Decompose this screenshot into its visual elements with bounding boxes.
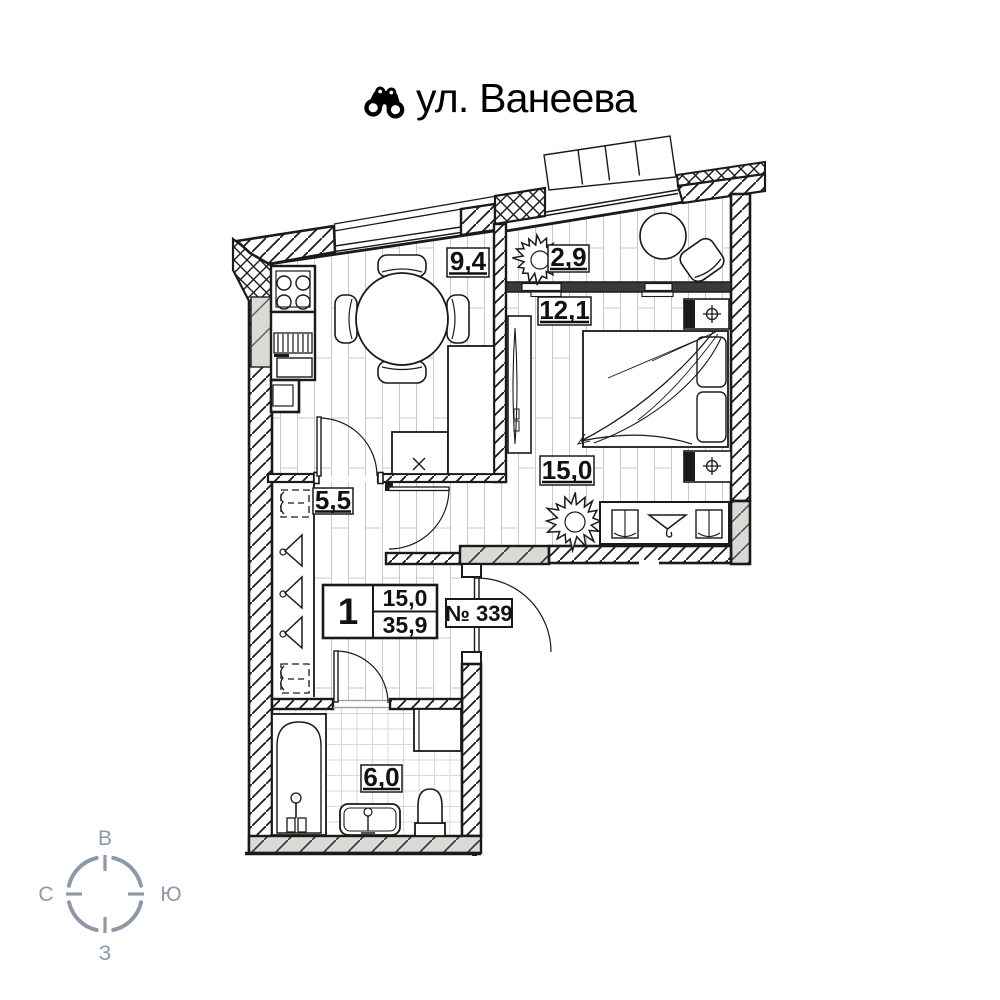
svg-text:В: В (98, 827, 112, 850)
svg-text:С: С (38, 883, 53, 906)
svg-text:12,1: 12,1 (539, 295, 590, 325)
svg-text:6,0: 6,0 (363, 762, 399, 792)
svg-text:9,4: 9,4 (450, 246, 487, 276)
svg-text:№ 339: № 339 (445, 601, 512, 626)
svg-text:З: З (99, 942, 112, 965)
svg-text:2,9: 2,9 (550, 242, 586, 272)
svg-text:1: 1 (338, 591, 359, 632)
svg-text:15,0: 15,0 (542, 455, 593, 485)
svg-text:15,0: 15,0 (383, 585, 428, 611)
svg-text:ул. Ванеева: ул. Ванеева (416, 75, 637, 121)
svg-text:Ю: Ю (160, 883, 181, 906)
svg-text:35,9: 35,9 (383, 612, 428, 638)
